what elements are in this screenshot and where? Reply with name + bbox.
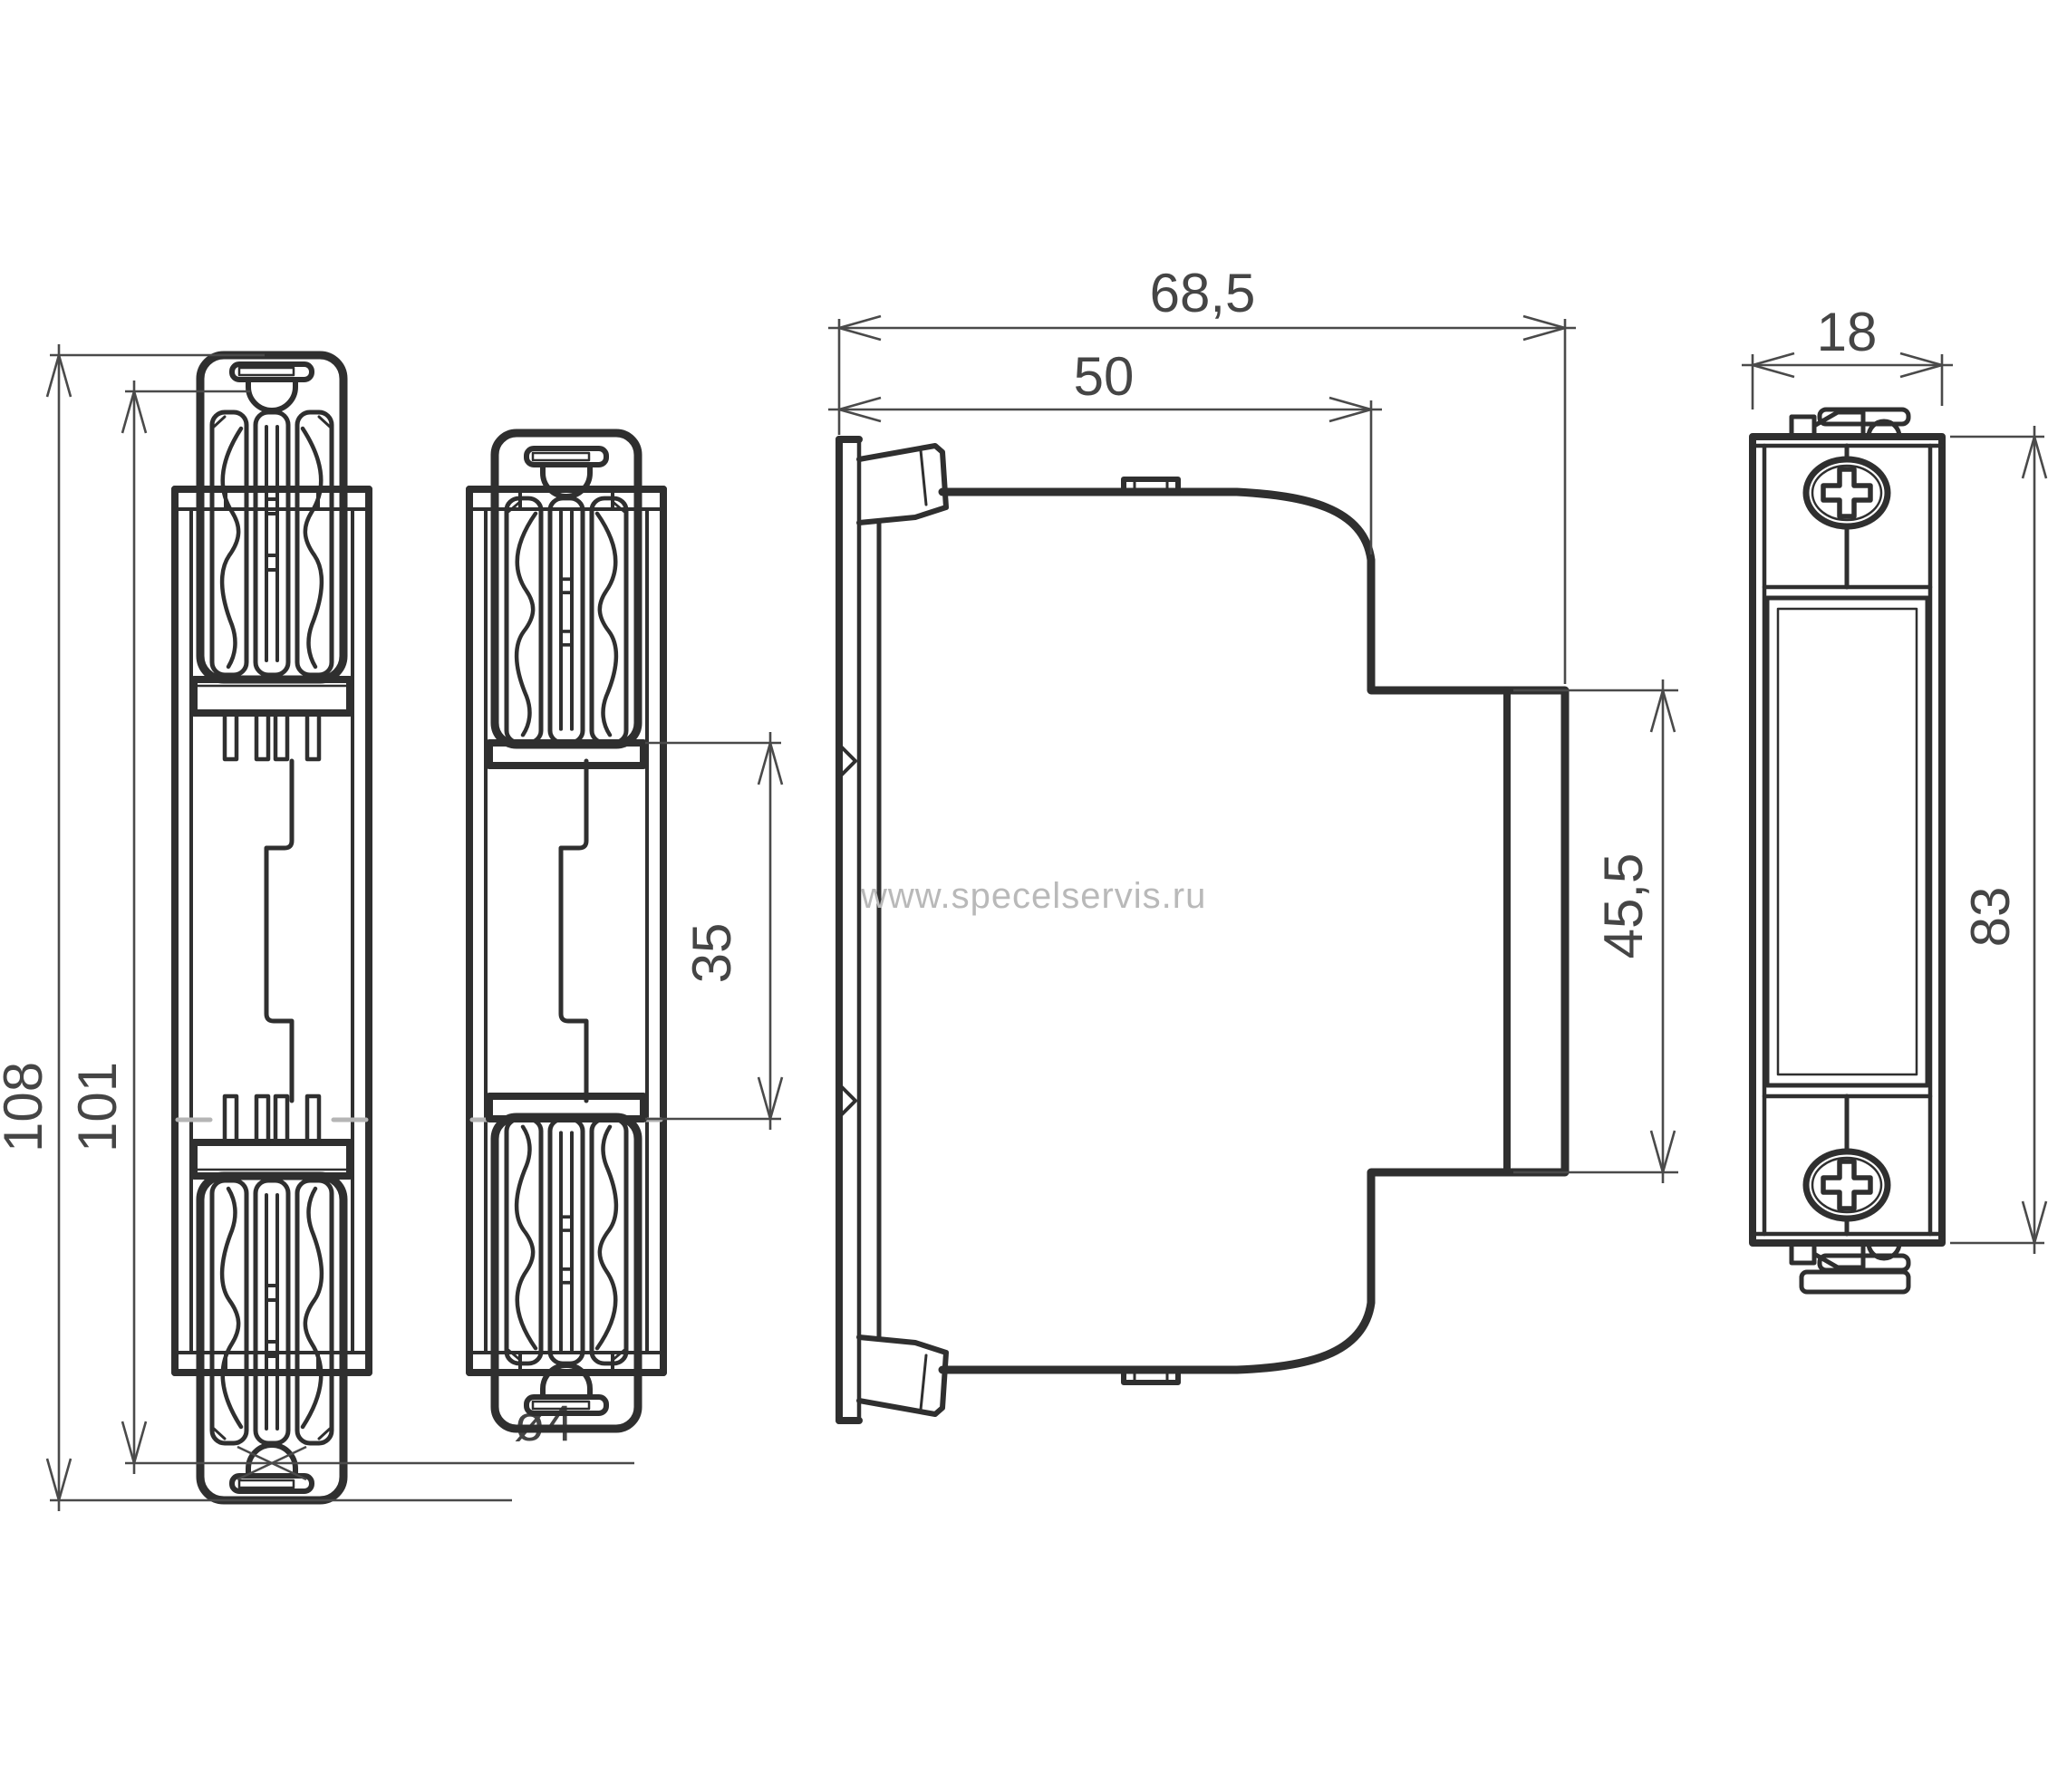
label-window <box>1767 598 1927 1085</box>
latch-tab-bottom <box>1124 1370 1178 1383</box>
dim-label-45-5: 45,5 <box>1593 853 1654 959</box>
latch-tab-top <box>1124 479 1178 492</box>
dim-label-35: 35 <box>681 923 742 984</box>
technical-drawing-canvas: 108 101 ø4 35 <box>0 0 2048 1792</box>
dim-label-83: 83 <box>1960 887 2021 948</box>
drawing-page: 108 101 ø4 35 <box>0 0 2048 1792</box>
dim-label-18: 18 <box>1817 302 1878 362</box>
dim-label-50: 50 <box>1074 346 1135 407</box>
din-clip-bottom-retracted <box>489 1096 643 1429</box>
view-rear-clips-retracted: 35 <box>469 433 782 1429</box>
din-clip-top-extended <box>194 355 350 759</box>
dim-label-101: 101 <box>67 1062 128 1152</box>
view-front-face: 18 83 <box>1742 302 2046 1292</box>
din-clip-top-retracted <box>489 433 643 766</box>
dim-label-68-5: 68,5 <box>1150 263 1256 323</box>
rail-claw-bottom <box>859 1337 946 1414</box>
dim-body-height-83: 83 <box>1950 426 2046 1254</box>
dim-depth-overall-68-5: 68,5 <box>828 263 1576 684</box>
side-body-outline <box>942 492 1565 1370</box>
face-clip-tab-top <box>1792 409 1908 437</box>
face-clip-tab-bottom <box>1792 1243 1908 1292</box>
phillips-screw-top <box>1806 459 1888 526</box>
rail-claw-top <box>859 446 946 523</box>
phillips-screw-bottom <box>1806 1151 1888 1219</box>
dim-hole-spacing-101: 101 <box>67 381 250 1474</box>
dim-label-108: 108 <box>0 1062 53 1152</box>
watermark-text: www.specelservis.ru <box>860 876 1206 916</box>
rear-plate <box>839 439 859 1421</box>
dim-module-width-18: 18 <box>1742 302 1953 409</box>
dim-label-o4: ø4 <box>514 1394 573 1451</box>
view-side-profile: 68,5 50 45,5 <box>828 263 1678 1421</box>
dim-front-height-45-5: 45,5 <box>1513 679 1678 1183</box>
din-clip-bottom-extended <box>194 1096 350 1500</box>
